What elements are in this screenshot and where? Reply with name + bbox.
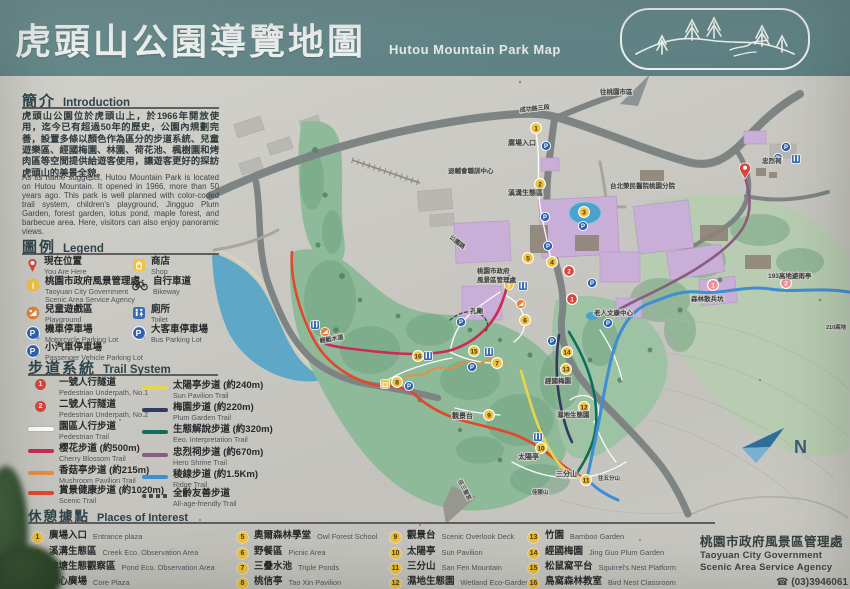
contour-lines bbox=[560, 320, 849, 518]
place-item: 8 桃信亭 Tao Xin Pavilion bbox=[237, 577, 341, 589]
map-label: 退輔會職訓中心 bbox=[448, 166, 494, 175]
parking-moto-icon: P機 bbox=[26, 326, 40, 340]
svg-text:P: P bbox=[776, 156, 780, 162]
place-number-icon: 12 bbox=[390, 578, 401, 589]
map-label: 往五分山 bbox=[597, 474, 621, 482]
legend-item-en: Bus Parking Lot bbox=[151, 336, 208, 344]
place-number-icon: 13 bbox=[528, 532, 539, 543]
info-icon: i bbox=[26, 278, 40, 292]
svg-text:6: 6 bbox=[523, 317, 527, 324]
place-item: 1 廣場入口 Entrance plaza bbox=[32, 531, 142, 543]
map-label: 往桃園市區 bbox=[600, 87, 633, 96]
map-label: 193高地避雨亭 bbox=[768, 271, 812, 280]
trail-swatch bbox=[142, 453, 168, 457]
place-item: 11 三分山 San Fen Mountain bbox=[390, 562, 502, 574]
parking-bus-icon: P大 bbox=[132, 326, 146, 340]
urban-blocks bbox=[234, 115, 796, 227]
map-label: 往三聖宮 bbox=[456, 477, 474, 502]
svg-text:2: 2 bbox=[784, 280, 788, 287]
trail-item: 梅園步道 (約220m) Plum Garden Trail bbox=[142, 403, 254, 422]
place-item: 6 野餐區 Picnic Area bbox=[237, 547, 326, 559]
svg-text:1: 1 bbox=[711, 282, 715, 289]
trail-item: 2二號人行隧道 Pedestrian Underpath, No.2 bbox=[28, 400, 148, 419]
map-label: 輕艇水道 bbox=[319, 333, 344, 345]
place-name-zh: 鳥窩森林教室 bbox=[545, 577, 602, 588]
trail-item: 忠烈祠步道 (約670m) Hero Shrine Trail bbox=[142, 448, 263, 467]
hero-shrine-trail bbox=[618, 177, 750, 310]
svg-text:1: 1 bbox=[570, 296, 574, 303]
toilet-icon bbox=[534, 433, 543, 442]
place-number-icon: 9 bbox=[390, 532, 401, 543]
parking-icon: P bbox=[467, 362, 476, 371]
trail-item-en: Hero Shrine Trail bbox=[173, 459, 263, 467]
svg-text:5: 5 bbox=[526, 255, 530, 262]
header-band: 虎頭山公園導覽地圖 Hutou Mountain Park Map bbox=[0, 0, 850, 76]
place-number-icon: 1 bbox=[32, 532, 43, 543]
trail-swatch bbox=[142, 408, 168, 412]
parking-icon: P bbox=[547, 336, 556, 345]
trail-item-en: Pedestrian Underpath, No.2 bbox=[59, 411, 148, 419]
info-icon: i bbox=[504, 280, 513, 289]
svg-text:16: 16 bbox=[414, 353, 422, 360]
place-number-icon: 6 bbox=[237, 548, 248, 559]
playground-icon bbox=[26, 306, 40, 320]
underpath-number-icon: 1 bbox=[35, 379, 46, 390]
trail-swatch bbox=[28, 491, 54, 495]
plum-garden-trail bbox=[557, 335, 572, 442]
map-label: 濕地生態園 bbox=[557, 410, 590, 419]
map-label: 台北榮民醫院桃園分院 bbox=[610, 181, 676, 190]
ridge-point-marker-2: 2 bbox=[781, 278, 792, 289]
place-name-en: Squirrel's Nest Platform bbox=[599, 564, 676, 572]
shop-icon bbox=[381, 380, 390, 389]
poi-marker-9: 9 bbox=[484, 410, 495, 421]
poi-marker-1: 1 bbox=[531, 123, 542, 134]
trail-item: 1一號人行隧道 Pedestrian Underpath, No.1 bbox=[28, 378, 148, 397]
svg-text:P: P bbox=[581, 224, 585, 230]
svg-text:8: 8 bbox=[395, 379, 399, 386]
place-number-icon: 15 bbox=[528, 563, 539, 574]
svg-text:i: i bbox=[508, 282, 510, 290]
trail-item-en: Mushroom Pavilion Trail bbox=[59, 477, 149, 485]
legend-item: 商店 Shop bbox=[132, 257, 170, 276]
underpath-marker-2: 2 bbox=[564, 266, 575, 277]
svg-text:7: 7 bbox=[495, 360, 499, 367]
poi-marker-11: 11 bbox=[581, 475, 592, 486]
parking-icon: P bbox=[781, 142, 790, 151]
eco-interpretation-trail bbox=[569, 332, 596, 473]
place-name-en: Entrance plaza bbox=[93, 533, 142, 541]
trail-item: 園區人行步道 Pedestrian Trail bbox=[28, 422, 116, 441]
place-name-en: Picnic Area bbox=[289, 549, 326, 557]
trail-swatch bbox=[28, 449, 54, 453]
poi-marker-13: 13 bbox=[561, 364, 572, 375]
place-name-en: Jing Guo Plum Garden bbox=[589, 549, 664, 557]
place-item: 9 觀景台 Scenic Overlook Deck bbox=[390, 531, 514, 543]
legend-item: 兒童遊戲區 Playground bbox=[26, 305, 93, 324]
trail-item-en: Cherry Blossom Trail bbox=[59, 455, 140, 463]
svg-text:2: 2 bbox=[538, 181, 542, 188]
trail-item: 櫻花步道 (約500m) Cherry Blossom Trail bbox=[28, 444, 140, 463]
parking-icon: P bbox=[587, 278, 596, 287]
intro-paragraph-zh: 虎頭山公園位於虎頭山上，於1966年開放使用，迄今已有超過50年的歷史，公園內規… bbox=[22, 111, 219, 179]
place-name-zh: 野餐區 bbox=[254, 547, 283, 558]
trail-swatch bbox=[142, 386, 168, 390]
toilet-icon bbox=[311, 321, 320, 330]
place-number-icon: 16 bbox=[528, 578, 539, 589]
agency-name-en1: Taoyuan City Government bbox=[700, 550, 848, 562]
parking-icon: P bbox=[541, 141, 550, 150]
legend-item-en: You Are Here bbox=[44, 268, 87, 276]
legend-item: P大 大客車停車場 Bus Parking Lot bbox=[132, 325, 208, 344]
place-number-icon: 5 bbox=[237, 532, 248, 543]
place-name-zh: 觀景台 bbox=[407, 531, 436, 542]
place-name-zh: 奧爾森林學堂 bbox=[254, 531, 311, 542]
location-pin-icon bbox=[739, 163, 750, 179]
agency-block: 桃園市政府風景區管理處 Taoyuan City Government Scen… bbox=[700, 531, 848, 588]
place-item: 2 溪溝生態區 Creek Eco. Observation Area bbox=[32, 547, 198, 559]
place-name-en: Tao Xin Pavilion bbox=[289, 579, 342, 587]
place-name-en: Bamboo Garden bbox=[570, 533, 624, 541]
trail-swatch bbox=[28, 427, 54, 431]
park-green-areas bbox=[290, 121, 849, 511]
svg-text:10: 10 bbox=[537, 445, 545, 452]
parking-icon: P bbox=[773, 153, 782, 162]
svg-text:1: 1 bbox=[534, 125, 538, 132]
trails-rule bbox=[28, 374, 218, 376]
place-number-icon: 7 bbox=[237, 563, 248, 574]
place-name-zh: 太陽亭 bbox=[407, 547, 436, 558]
toilet-icon bbox=[424, 352, 433, 361]
toilet-icon bbox=[792, 155, 801, 164]
trail-item-en: Pedestrian Underpath, No.1 bbox=[59, 389, 148, 397]
svg-text:大: 大 bbox=[141, 334, 146, 341]
place-number-icon: 8 bbox=[237, 578, 248, 589]
svg-text:P: P bbox=[590, 281, 594, 287]
map-label: 桃園市政府 bbox=[477, 266, 510, 275]
place-name-zh: 經國梅園 bbox=[545, 547, 583, 558]
legend-item: 自行車道 Bikeway bbox=[132, 277, 191, 296]
place-name-en: Core Plaza bbox=[93, 579, 130, 587]
parking-icon: P bbox=[578, 221, 587, 230]
place-item: 10 太陽亭 Sun Pavilion bbox=[390, 547, 483, 559]
parking-icon: P bbox=[543, 241, 552, 250]
trail-item-en: Eeo. Interpretation Trail bbox=[173, 436, 273, 444]
legend-item-en: Toilet bbox=[151, 316, 170, 324]
poi-marker-16: 16 bbox=[413, 351, 424, 362]
svg-text:P: P bbox=[546, 244, 550, 250]
map-label: 孔廟 bbox=[470, 306, 484, 315]
place-name-en: Pond Eco. Observation Area bbox=[122, 564, 215, 572]
place-name-zh: 三疊水池 bbox=[254, 562, 292, 573]
place-item: 15 松鼠窩平台 Squirrel's Nest Platform bbox=[528, 562, 676, 574]
svg-text:P: P bbox=[407, 384, 411, 390]
trail-item: 生態解說步道 (約320m) Eeo. Interpretation Trail bbox=[142, 425, 273, 444]
poi-marker-8: 8 bbox=[392, 377, 403, 388]
playground-icon bbox=[320, 327, 329, 336]
underpath-marker-1: 1 bbox=[567, 294, 578, 305]
trees bbox=[312, 147, 722, 462]
place-item: 12 濕地生態園 Wetland Eco-Garden bbox=[390, 577, 529, 589]
trail-swatch bbox=[142, 475, 168, 479]
scenic-trail bbox=[292, 252, 586, 479]
poi-marker-3: 3 bbox=[579, 207, 590, 218]
svg-text:13: 13 bbox=[562, 366, 570, 373]
intro-rule bbox=[22, 107, 219, 109]
place-name-zh: 三分山 bbox=[407, 562, 436, 573]
place-name-en: Sun Pavilion bbox=[442, 549, 483, 557]
poi-marker-5: 5 bbox=[523, 253, 534, 264]
ridge-trail bbox=[587, 288, 849, 500]
trail-swatch bbox=[142, 494, 168, 498]
legend-item-en: Bikeway bbox=[153, 288, 191, 296]
place-number-icon: 10 bbox=[390, 548, 401, 559]
park-map-sign: N 123456789101112131415161212PPPPPPPPPPP… bbox=[0, 0, 850, 589]
map-label: 老人文康中心 bbox=[593, 308, 634, 317]
legend-item: 廁所 Toilet bbox=[132, 305, 170, 324]
svg-text:15: 15 bbox=[470, 348, 478, 355]
svg-text:12: 12 bbox=[580, 404, 588, 411]
arrow-to-sansheng-temple bbox=[443, 486, 476, 524]
place-name-zh: 溪溝生態區 bbox=[49, 547, 97, 558]
arrow-to-taoyuan-city bbox=[620, 74, 650, 106]
compass-north: N bbox=[742, 428, 807, 463]
svg-text:4: 4 bbox=[550, 259, 554, 266]
map-label: 佳陵山 bbox=[532, 488, 549, 496]
svg-text:9: 9 bbox=[487, 412, 491, 419]
poi-marker-2: 2 bbox=[535, 179, 546, 190]
map-label: 廣場入口 bbox=[507, 138, 536, 147]
playground-icon bbox=[516, 299, 525, 308]
agency-name-en2: Scenic Area Service Agency bbox=[700, 562, 848, 574]
buildings bbox=[454, 131, 777, 320]
poi-marker-12: 12 bbox=[579, 402, 590, 413]
trail-item-en: Sun Pavilion Trail bbox=[173, 392, 263, 400]
map-label: 忠烈祠 bbox=[762, 156, 782, 165]
lake-shore bbox=[212, 250, 328, 378]
place-name-zh: 松鼠窩平台 bbox=[545, 562, 593, 573]
place-name-zh: 竹園 bbox=[545, 531, 564, 542]
map-label: 風景區管理處 bbox=[477, 275, 517, 284]
place-name-zh: 濕地生態園 bbox=[407, 577, 455, 588]
place-name-en: Creek Eco. Observation Area bbox=[103, 549, 199, 557]
trails bbox=[292, 177, 849, 500]
map-label: 觀景台 bbox=[452, 411, 473, 420]
poi-marker-4: 4 bbox=[547, 257, 558, 268]
toilet-icon bbox=[132, 306, 146, 320]
trail-item-en: Pedestrian Trail bbox=[59, 433, 116, 441]
places-rule bbox=[28, 522, 715, 524]
parking-icon: P bbox=[540, 212, 549, 221]
place-name-zh: 桃信亭 bbox=[254, 577, 283, 588]
svg-text:機: 機 bbox=[35, 334, 40, 341]
sun-pavilion-trail bbox=[521, 371, 579, 477]
shop-icon bbox=[132, 258, 146, 272]
agency-phone: ☎ (03)3946061 bbox=[700, 577, 848, 588]
mushroom-pavilion-trail bbox=[400, 359, 506, 380]
place-item: 16 鳥窩森林教室 Bird Nest Classroom bbox=[528, 577, 676, 589]
toilet-icon bbox=[485, 348, 494, 357]
place-name-en: Triple Ponds bbox=[298, 564, 339, 572]
place-item: 14 經國梅園 Jing Guo Plum Garden bbox=[528, 547, 664, 559]
map-label: 公園路 bbox=[448, 233, 468, 251]
place-name-en: Wetland Eco-Garden bbox=[461, 579, 530, 587]
map-label: 溪溝生態區 bbox=[508, 188, 543, 197]
trail-item: 太陽亭步道 (約240m) Sun Pavilion Trail bbox=[142, 381, 263, 400]
place-name-zh: 廣場入口 bbox=[49, 531, 87, 542]
trail-item: 稜線步道 (約1.5Km) Ridge Trail bbox=[142, 470, 258, 489]
poi-marker-7: 7 bbox=[492, 358, 503, 369]
map-label: 太陽亭 bbox=[518, 452, 539, 461]
pedestrian-paths bbox=[378, 133, 626, 478]
svg-text:P: P bbox=[544, 144, 548, 150]
parking-car-icon: P小 bbox=[26, 344, 40, 358]
place-name-en: Bird Nest Classroom bbox=[608, 579, 676, 587]
ridge-point-marker-1: 1 bbox=[708, 280, 719, 291]
legend-item-en: Playground bbox=[45, 316, 93, 324]
parking-icon: P bbox=[404, 381, 413, 390]
svg-text:P: P bbox=[470, 365, 474, 371]
railway bbox=[352, 160, 420, 183]
svg-text:11: 11 bbox=[583, 477, 590, 484]
agency-phone-number: (03)3946061 bbox=[791, 577, 848, 588]
agency-name-zh: 桃園市政府風景區管理處 bbox=[700, 531, 848, 550]
parking-icon: P bbox=[456, 317, 465, 326]
place-name-en: San Fen Mountain bbox=[442, 564, 502, 572]
map-label: 三分山 bbox=[556, 469, 577, 478]
legend-item-en: Shop bbox=[151, 268, 170, 276]
trail-swatch bbox=[142, 430, 168, 434]
svg-text:2: 2 bbox=[567, 268, 571, 275]
bike-icon bbox=[132, 278, 148, 291]
toilet-icon bbox=[519, 282, 528, 291]
you-are-here-pin-icon bbox=[26, 258, 39, 274]
map-label: 森林散兵坑 bbox=[691, 294, 724, 303]
roads bbox=[210, 93, 828, 514]
phone-icon: ☎ bbox=[776, 577, 788, 588]
svg-text:P: P bbox=[543, 215, 547, 221]
map-label: 210高地 bbox=[826, 323, 847, 331]
map-label: 成功路三段 bbox=[519, 103, 550, 114]
park-logo-icon bbox=[620, 8, 810, 70]
svg-text:P: P bbox=[784, 145, 788, 151]
svg-text:14: 14 bbox=[563, 349, 571, 356]
compass-n-label: N bbox=[794, 437, 807, 457]
cherry-blossom-trail bbox=[326, 276, 509, 354]
poi-marker-10: 10 bbox=[536, 443, 547, 454]
poi-marker-15: 15 bbox=[469, 346, 480, 357]
lake-canoe-waterway bbox=[212, 250, 328, 381]
place-name-en: Owl Forest School bbox=[317, 533, 377, 541]
underpath-number-icon: 2 bbox=[35, 401, 46, 412]
svg-text:3: 3 bbox=[582, 209, 586, 216]
place-item: 5 奧爾森林學堂 Owl Forest School bbox=[237, 531, 377, 543]
trail-item-en: Plum Garden Trail bbox=[173, 414, 254, 422]
place-number-icon: 14 bbox=[528, 548, 539, 559]
all-age-friendly-trail bbox=[450, 312, 488, 331]
trail-item: 香菇亭步道 (約215m) Mushroom Pavilion Trail bbox=[28, 466, 149, 485]
trail-swatch bbox=[28, 471, 54, 475]
place-number-icon: 11 bbox=[390, 563, 401, 574]
place-name-en: Scenic Overlook Deck bbox=[442, 533, 515, 541]
place-item: 7 三疊水池 Triple Ponds bbox=[237, 562, 339, 574]
svg-text:P: P bbox=[606, 321, 610, 327]
parking-icon: P bbox=[603, 318, 612, 327]
legend-item: 現在位置 You Are Here bbox=[26, 257, 87, 276]
page-title-en: Hutou Mountain Park Map bbox=[389, 42, 561, 57]
place-item: 13 竹園 Bamboo Garden bbox=[528, 531, 624, 543]
legend-rule bbox=[22, 253, 219, 255]
page-title-zh: 虎頭山公園導覽地圖 bbox=[15, 13, 366, 65]
intro-paragraph-en: As its name suggests, Hutou Mountain Par… bbox=[22, 173, 219, 236]
svg-text:P: P bbox=[550, 339, 554, 345]
map-label: 經國梅園 bbox=[545, 376, 572, 385]
svg-text:P: P bbox=[459, 320, 463, 326]
poi-marker-6: 6 bbox=[520, 315, 531, 326]
poi-marker-14: 14 bbox=[562, 347, 573, 358]
